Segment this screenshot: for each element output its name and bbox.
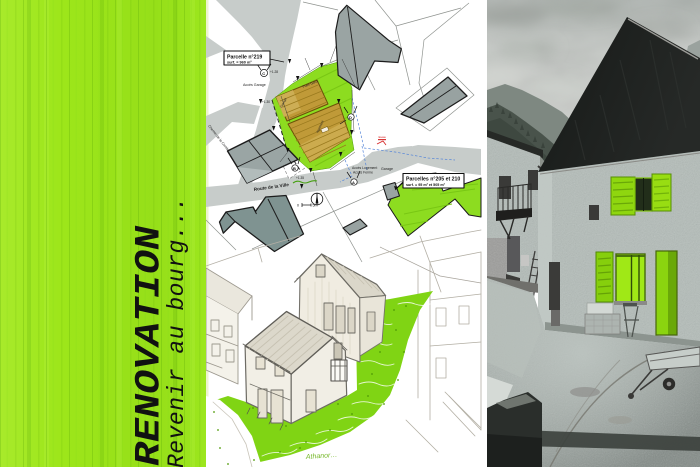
svg-text:A: A bbox=[352, 180, 355, 185]
svg-text:0: 0 bbox=[297, 204, 299, 208]
svg-text:Garage: Garage bbox=[381, 167, 393, 171]
svg-text:Parcelles n°205 et 210: Parcelles n°205 et 210 bbox=[406, 177, 460, 183]
svg-text:+1.35: +1.35 bbox=[296, 176, 304, 180]
svg-text:+1.28: +1.28 bbox=[270, 70, 278, 74]
svg-text:réseau: réseau bbox=[378, 135, 386, 139]
svg-text:surf. = 95 m² et 505 m²: surf. = 95 m² et 505 m² bbox=[406, 183, 446, 187]
svg-text:Athanor…: Athanor… bbox=[305, 452, 338, 461]
svg-text:D: D bbox=[349, 115, 352, 120]
svg-text:C: C bbox=[262, 71, 265, 76]
svg-text:surf. = 960 m²: surf. = 960 m² bbox=[227, 61, 252, 65]
svg-text:Accès Garage: Accès Garage bbox=[243, 83, 266, 87]
svg-text:Accès Ferme: Accès Ferme bbox=[353, 171, 373, 175]
svg-text:5m: 5m bbox=[313, 204, 318, 208]
svg-text:Accès Logement: Accès Logement bbox=[352, 166, 377, 170]
svg-text:+1.30: +1.30 bbox=[262, 100, 270, 104]
svg-text:B: B bbox=[293, 166, 296, 171]
